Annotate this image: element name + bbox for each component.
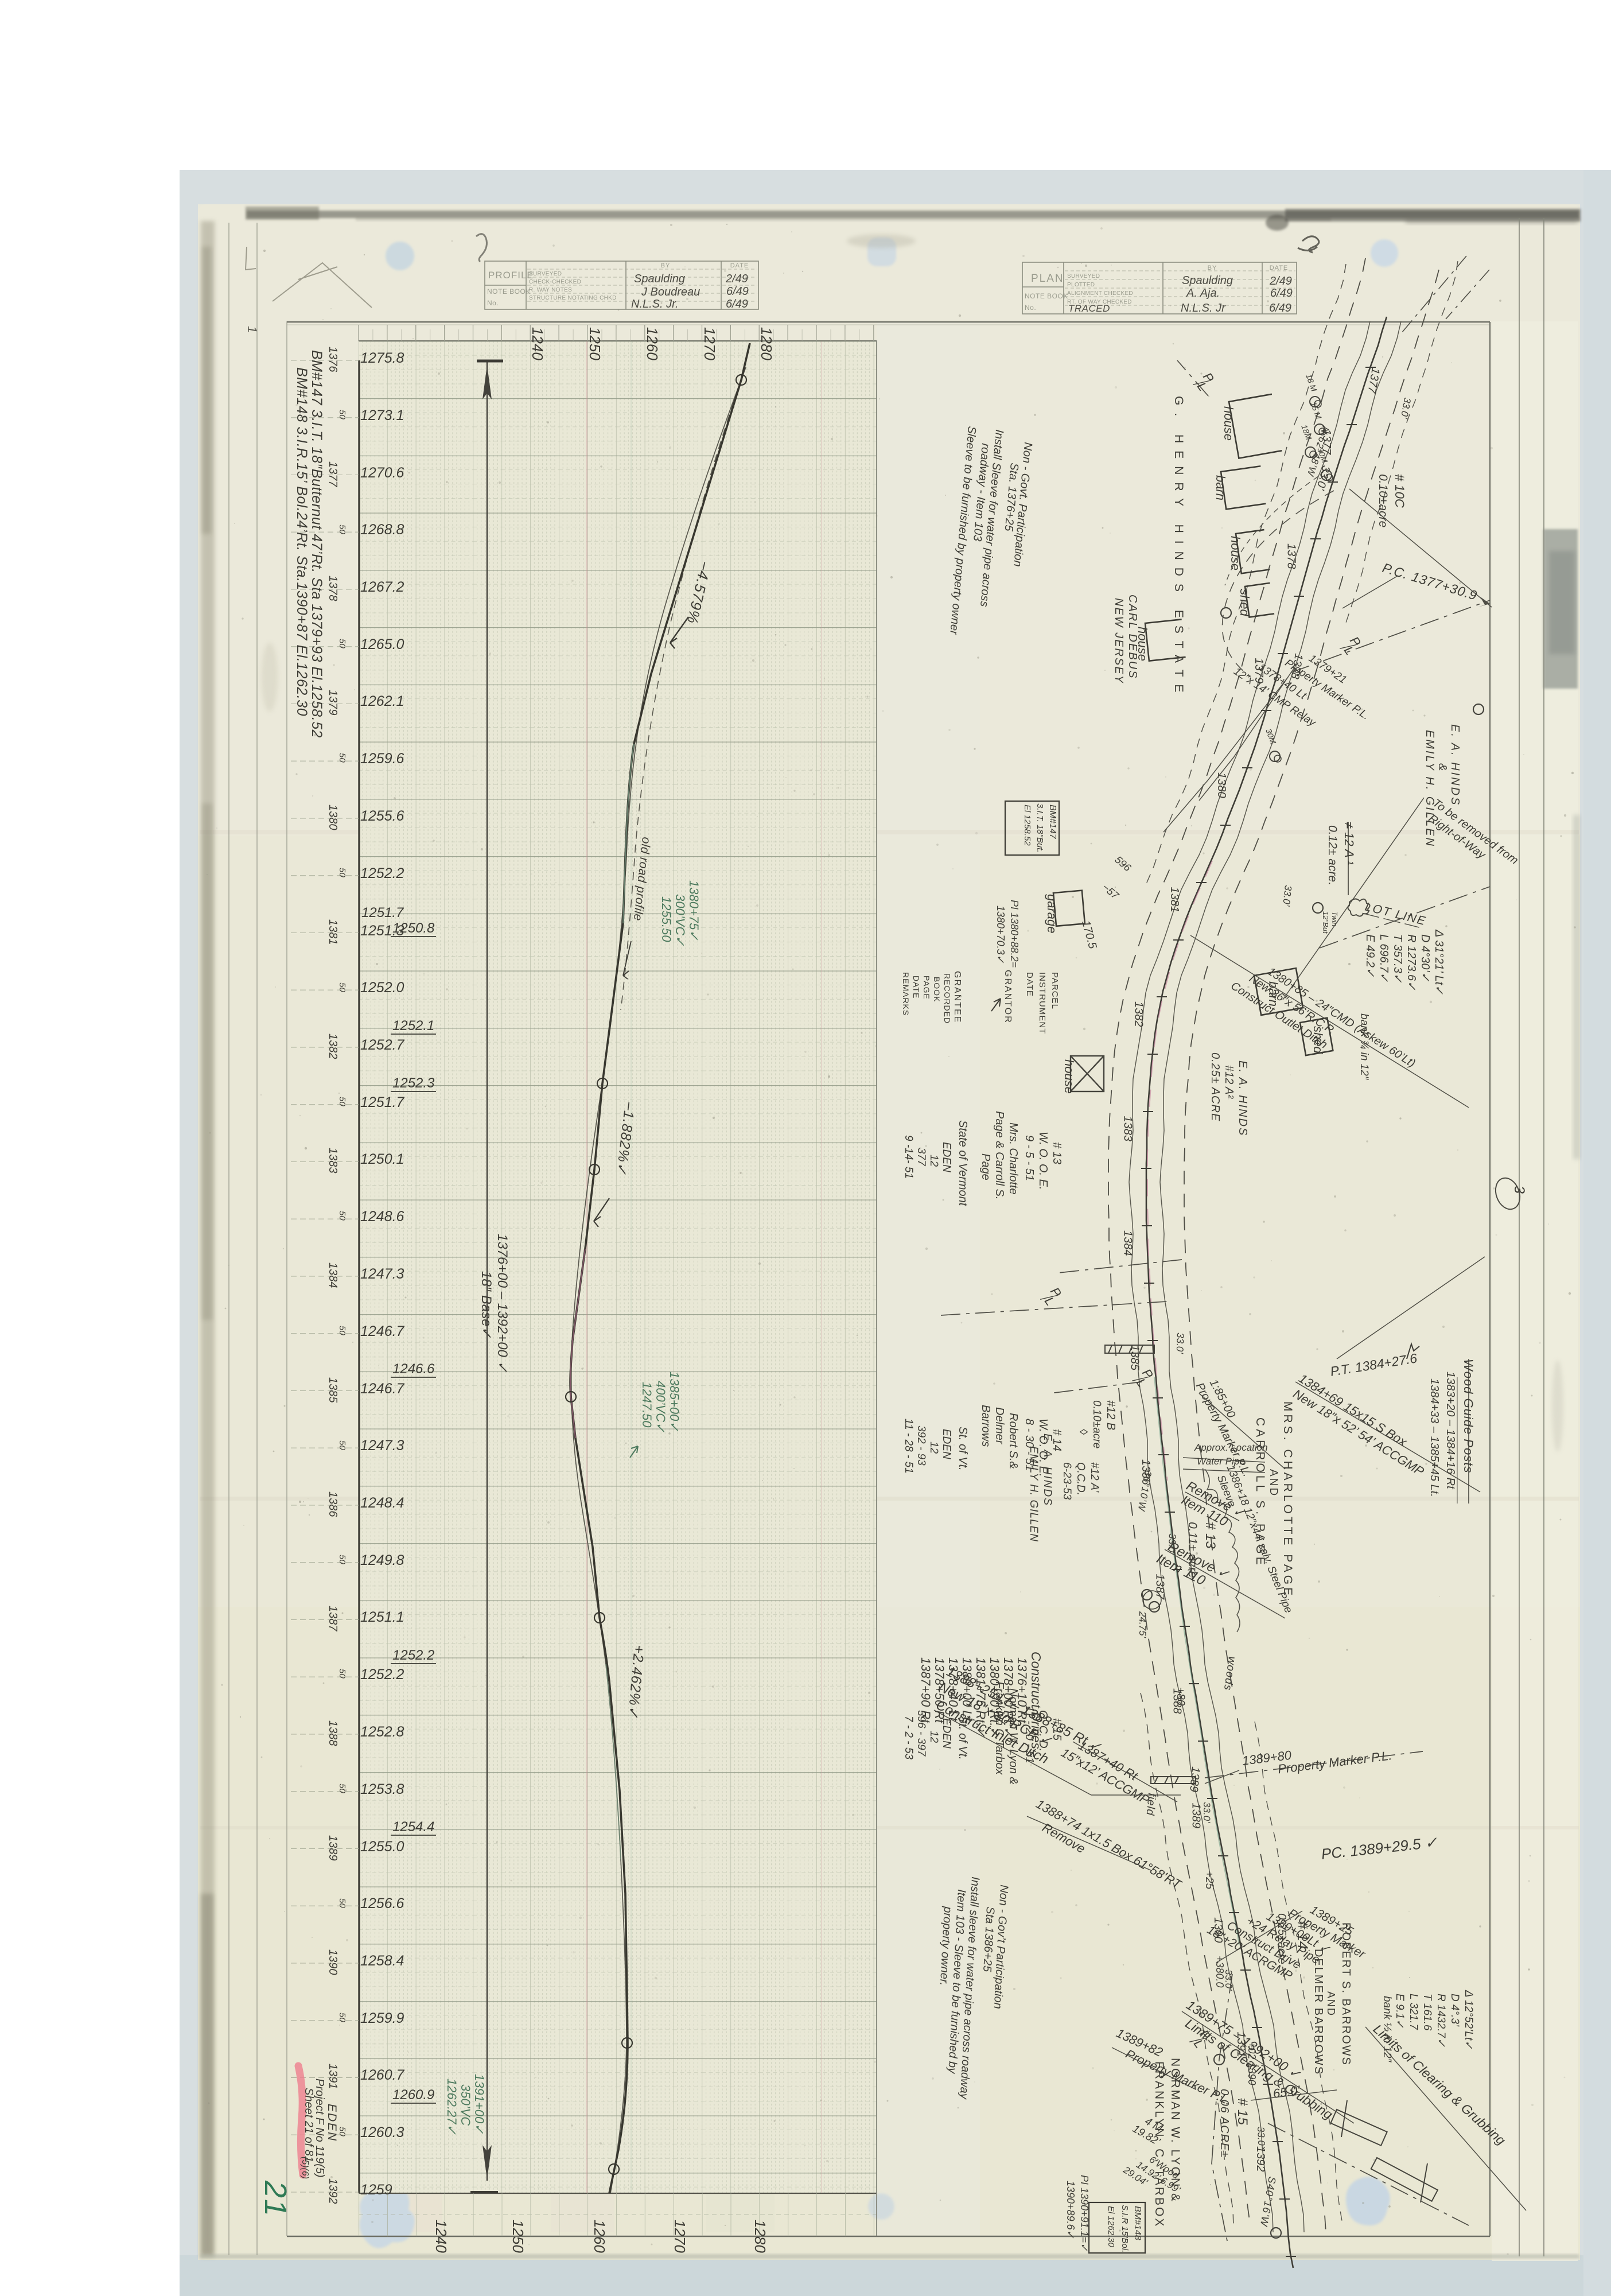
svg-text:Approx. Location: Approx. Location	[1194, 1442, 1268, 1453]
svg-text:1381: 1381	[1168, 887, 1181, 913]
svg-text:1378: 1378	[1285, 543, 1297, 569]
svg-text:1260: 1260	[591, 2220, 608, 2253]
svg-text:DATE: DATE	[1270, 265, 1289, 271]
svg-text:33.0’: 33.0’	[1255, 2126, 1267, 2148]
svg-text:ALIGNMENT CHECKED: ALIGNMENT CHECKED	[1067, 290, 1133, 297]
svg-text:Δ 12°52’Lt✓: Δ 12°52’Lt✓	[1462, 1990, 1474, 2049]
svg-text:#12 A’: #12 A’	[1088, 1462, 1100, 1493]
svg-text:Mrs. Charlotte: Mrs. Charlotte	[1007, 1122, 1019, 1195]
svg-text:INSTRUMENT: INSTRUMENT	[1037, 972, 1047, 1034]
svg-text:1250: 1250	[509, 2220, 527, 2253]
svg-text:Robert S.&: Robert S.&	[1007, 1413, 1019, 1469]
svg-text:1240: 1240	[433, 2220, 450, 2253]
svg-text:1253.8: 1253.8	[360, 1781, 404, 1797]
svg-text:PLAN: PLAN	[1031, 273, 1064, 285]
svg-text:9 -14- 51: 9 -14- 51	[902, 1135, 915, 1179]
svg-text:+380.0: +380.0	[1214, 1956, 1225, 1988]
svg-text:396 - 397: 396 - 397	[915, 1710, 927, 1757]
svg-text:1260.9: 1260.9	[392, 2087, 434, 2103]
svg-text:SURVEYED: SURVEYED	[1067, 273, 1100, 279]
svg-text:1252.2: 1252.2	[392, 1648, 434, 1663]
svg-text:◊: ◊	[1077, 1429, 1089, 1435]
svg-text:50: 50	[337, 525, 347, 534]
svg-text:PLOTTED: PLOTTED	[1067, 282, 1095, 288]
svg-text:S.I.R 15’Bol.: S.I.R 15’Bol.	[1120, 2205, 1130, 2252]
svg-text:TRACED: TRACED	[1068, 303, 1110, 314]
svg-text:1248.4: 1248.4	[360, 1495, 404, 1511]
svg-text:RECORDED: RECORDED	[943, 973, 952, 1024]
svg-text:1252.0: 1252.0	[360, 980, 404, 996]
svg-text:6/49: 6/49	[726, 298, 748, 310]
svg-text:1384: 1384	[326, 1262, 339, 1288]
svg-text:1280: 1280	[752, 2220, 769, 2253]
svg-text:377: 377	[915, 1148, 927, 1167]
svg-text:1247.3: 1247.3	[360, 1266, 404, 1282]
svg-text:# 13: # 13	[1203, 1522, 1218, 1549]
svg-text:Q.C.D.: Q.C.D.	[1075, 1462, 1087, 1495]
svg-text:R. WAY NOTES: R. WAY NOTES	[529, 287, 572, 293]
svg-text:L 321.7: L 321.7	[1407, 1994, 1419, 2030]
svg-text:# 10C: # 10C	[1392, 474, 1407, 508]
svg-text:11 - 28 - 51: 11 - 28 - 51	[902, 1419, 915, 1474]
svg-text:1246.6: 1246.6	[392, 1361, 435, 1377]
svg-text:50: 50	[337, 1669, 347, 1679]
svg-text:1262.1: 1262.1	[360, 693, 404, 709]
svg-text:DELMER BARROWS: DELMER BARROWS	[1312, 1949, 1325, 2075]
svg-text:St. of Vt.: St. of Vt.	[956, 1716, 969, 1760]
svg-text:1255.0: 1255.0	[360, 1839, 404, 1855]
svg-text:T 357.3✓: T 357.3✓	[1391, 934, 1404, 983]
svg-text:1376+00 – 1392+00 ✓: 1376+00 – 1392+00 ✓	[495, 1234, 510, 1373]
svg-text:Δ 31°21’ Lt✓: Δ 31°21’ Lt✓	[1433, 929, 1445, 994]
svg-text:1385: 1385	[326, 1377, 339, 1403]
svg-text:SURVEYED: SURVEYED	[529, 271, 562, 277]
svg-text:1254.4: 1254.4	[392, 1819, 434, 1835]
svg-text:R 1432.7✓: R 1432.7✓	[1435, 1994, 1447, 2047]
svg-text:BM#147: BM#147	[1048, 805, 1057, 840]
svg-text:Franklyn C.Tarbox: Franklyn C.Tarbox	[993, 1681, 1006, 1776]
svg-text:33.0’: 33.0’	[1281, 885, 1294, 907]
svg-text:1386: 1386	[326, 1491, 339, 1517]
svg-text:1376: 1376	[326, 347, 339, 372]
svg-text:1259.6: 1259.6	[360, 751, 404, 767]
svg-text:1377: 1377	[326, 461, 339, 487]
svg-text:1255.6: 1255.6	[360, 808, 404, 824]
svg-text:1256.6: 1256.6	[360, 1895, 404, 1912]
svg-text:1275.8: 1275.8	[360, 350, 404, 366]
svg-text:EMILY H. GILLEN: EMILY H. GILLEN	[1423, 730, 1436, 848]
svg-text:1388: 1388	[326, 1720, 339, 1746]
svg-text:G. HENRY HINDS ESTATE: G. HENRY HINDS ESTATE	[1172, 396, 1185, 700]
svg-text:GRANTOR: GRANTOR	[1003, 970, 1013, 1024]
svg-text:1380+70.3✓: 1380+70.3✓	[995, 906, 1006, 964]
svg-text:&: &	[1436, 763, 1449, 771]
svg-text:1390: 1390	[326, 1949, 339, 1975]
svg-text:1252.8: 1252.8	[360, 1724, 404, 1740]
svg-text:1270: 1270	[671, 2220, 688, 2253]
svg-text:1259: 1259	[360, 2182, 392, 2198]
svg-text:1251.7: 1251.7	[360, 1094, 405, 1110]
svg-text:T 161.6: T 161.6	[1421, 1994, 1433, 2031]
svg-text:St. of Vt.: St. of Vt.	[956, 1427, 969, 1471]
svg-text:1391+00✓: 1391+00✓	[472, 2074, 487, 2134]
svg-text:house: house	[1228, 536, 1243, 570]
svg-text:1390+89.6✓: 1390+89.6✓	[1065, 2181, 1076, 2239]
svg-text:1391: 1391	[326, 2064, 339, 2089]
svg-text:N.L.S. Jr: N.L.S. Jr	[1181, 302, 1226, 314]
svg-text:1247.50: 1247.50	[640, 1382, 654, 1428]
svg-text:1249.8: 1249.8	[360, 1552, 404, 1568]
svg-text:1382: 1382	[326, 1034, 339, 1059]
svg-text:DATE: DATE	[1025, 972, 1034, 997]
svg-text:1240: 1240	[529, 327, 546, 360]
svg-text:1280: 1280	[758, 327, 775, 360]
svg-text:1267.2: 1267.2	[360, 579, 404, 595]
svg-text:PAGE: PAGE	[922, 976, 931, 1000]
svg-text:1380+75✓: 1380+75✓	[687, 880, 701, 941]
svg-text:garage: garage	[1045, 894, 1059, 934]
svg-text:1383: 1383	[1121, 1116, 1134, 1142]
svg-text:1258.4: 1258.4	[360, 1953, 404, 1969]
svg-text:24.75’: 24.75’	[1137, 1611, 1148, 1638]
svg-text:1247.3: 1247.3	[360, 1438, 404, 1454]
svg-text:50: 50	[337, 1326, 347, 1335]
svg-text:1389: 1389	[1187, 1766, 1202, 1793]
svg-text:El 1262.30: El 1262.30	[1106, 2206, 1116, 2247]
svg-text:Sheet 21 of 81: Sheet 21 of 81	[302, 2088, 315, 2162]
svg-text:#12 B: #12 B	[1104, 1400, 1117, 1430]
svg-text:L 696.7✓: L 696.7✓	[1377, 934, 1390, 982]
svg-text:shed: shed	[1238, 589, 1252, 616]
svg-text:1392: 1392	[1254, 2146, 1267, 2172]
svg-text:9 - 5 - 51: 9 - 5 - 51	[1023, 1135, 1036, 1181]
svg-text:REMARKS: REMARKS	[901, 972, 910, 1016]
svg-text:1378: 1378	[326, 576, 339, 601]
svg-text:1384: 1384	[1122, 1230, 1134, 1256]
svg-text:# 15: # 15	[1235, 2098, 1250, 2125]
svg-text:1260.7: 1260.7	[360, 2067, 405, 2083]
svg-text:1252.3: 1252.3	[392, 1075, 435, 1091]
svg-text:+25: +25	[1203, 1871, 1215, 1890]
svg-text:R 1273.6✓: R 1273.6✓	[1405, 934, 1418, 990]
svg-text:1252.2: 1252.2	[360, 865, 404, 881]
svg-text:1383: 1383	[326, 1148, 339, 1174]
svg-text:1270.6: 1270.6	[360, 465, 404, 481]
svg-text:50: 50	[337, 1555, 347, 1564]
svg-text:1255.50: 1255.50	[659, 896, 674, 942]
svg-text:6/49: 6/49	[1270, 287, 1293, 300]
svg-text:8 - 30 - 51: 8 - 30 - 51	[1023, 1419, 1036, 1471]
svg-text:N.L.S. Jr.: N.L.S. Jr.	[631, 298, 679, 310]
svg-text:1250: 1250	[586, 327, 604, 360]
svg-text:0.10±acre: 0.10±acre	[1091, 1400, 1103, 1448]
svg-text:1251.1: 1251.1	[360, 1609, 404, 1625]
svg-text:1268.8: 1268.8	[360, 522, 404, 538]
svg-text:NOTE BOOK: NOTE BOOK	[1025, 292, 1068, 300]
svg-text:6/49: 6/49	[1269, 302, 1291, 314]
svg-text:State of Vermont: State of Vermont	[956, 1120, 969, 1207]
svg-text:1265.0: 1265.0	[360, 636, 404, 652]
svg-text:BM#147 3.I.T. 18″Butternut 47’: BM#147 3.I.T. 18″Butternut 47’Rt. Sta 13…	[309, 350, 325, 738]
svg-text:50: 50	[337, 410, 347, 419]
svg-text:1252.2: 1252.2	[360, 1666, 404, 1683]
svg-text:33.0’: 33.0’	[1174, 1332, 1186, 1354]
svg-text:1382: 1382	[1133, 1001, 1145, 1027]
svg-text:PARCEL: PARCEL	[1050, 972, 1060, 1009]
svg-text:Q. C. D.: Q. C. D.	[1037, 1710, 1049, 1751]
svg-text:1389+00 Lt.: 1389+00 Lt.	[960, 1657, 974, 1724]
svg-text:350’VC: 350’VC	[458, 2084, 473, 2126]
svg-text:El 1258.52: El 1258.52	[1022, 805, 1032, 846]
svg-text:AND: AND	[1325, 1991, 1337, 2017]
svg-text:12″But: 12″But	[1321, 911, 1330, 934]
svg-text:50: 50	[337, 753, 347, 763]
svg-text:1260: 1260	[644, 327, 661, 360]
svg-text:E. A. HINDS: E. A. HINDS	[1449, 724, 1461, 806]
svg-text:Page: Page	[979, 1153, 992, 1180]
svg-text:1378+50 Rt: 1378+50 Rt	[932, 1657, 947, 1723]
svg-text:No.: No.	[487, 299, 499, 307]
svg-text:7 - 2 - 53: 7 - 2 - 53	[902, 1716, 915, 1759]
svg-text:Spaulding: Spaulding	[1182, 274, 1233, 287]
svg-text:12: 12	[928, 1731, 940, 1743]
svg-text:50: 50	[337, 1440, 347, 1450]
svg-text:BM#148 3.I.R.15’ Bol.24’Rt. St: BM#148 3.I.R.15’ Bol.24’Rt. Sta.1390+87 …	[294, 367, 310, 716]
svg-text:2/49: 2/49	[725, 273, 748, 285]
svg-text:12: 12	[928, 1155, 940, 1167]
svg-text:house: house	[1221, 406, 1236, 441]
svg-text:18″ Base✓: 18″ Base✓	[478, 1271, 494, 1338]
svg-text:Twin: Twin	[1330, 911, 1339, 926]
svg-text:BM#148: BM#148	[1133, 2206, 1142, 2240]
svg-text:6/49: 6/49	[726, 285, 749, 298]
svg-text:1379: 1379	[326, 690, 339, 716]
svg-text:1270: 1270	[701, 327, 718, 360]
svg-text:# 13: # 13	[1050, 1142, 1063, 1164]
svg-text:1252.7: 1252.7	[360, 1037, 405, 1053]
svg-text:6-23-53: 6-23-53	[1061, 1462, 1073, 1500]
svg-text:3.I.T. 18″But.: 3.I.T. 18″But.	[1035, 803, 1045, 853]
svg-text:EDEN: EDEN	[325, 2104, 338, 2142]
svg-text:1381: 1381	[326, 919, 339, 945]
svg-text:1252.1: 1252.1	[392, 1018, 434, 1034]
svg-text:1250.8: 1250.8	[392, 920, 435, 936]
svg-text:barn: barn	[1213, 475, 1228, 500]
svg-text:PROFILE: PROFILE	[488, 270, 534, 281]
svg-text:Water Pipe: Water Pipe	[1197, 1456, 1245, 1467]
svg-text:NOTE BOOK: NOTE BOOK	[487, 288, 531, 296]
svg-text:+80: +80	[1174, 1687, 1186, 1706]
svg-text:1389: 1389	[326, 1835, 339, 1861]
svg-text:# 14: # 14	[1050, 1429, 1063, 1451]
svg-text:≠ 12 A ¹: ≠ 12 A ¹	[1342, 822, 1356, 865]
svg-text:50: 50	[337, 868, 347, 877]
svg-text:Barrows: Barrows	[979, 1405, 992, 1447]
svg-text:EDEN: EDEN	[940, 1429, 952, 1459]
svg-text:50: 50	[337, 1898, 347, 1908]
svg-text:1250.1: 1250.1	[360, 1151, 404, 1167]
svg-text:W. O. O. E.: W. O. O. E.	[1037, 1419, 1049, 1477]
svg-text:1248.6: 1248.6	[360, 1209, 404, 1225]
svg-text:DATE: DATE	[730, 262, 749, 269]
svg-text:50: 50	[337, 982, 347, 992]
svg-text:No.: No.	[1025, 304, 1036, 312]
svg-text:AND: AND	[1267, 1469, 1279, 1497]
svg-text:50: 50	[337, 639, 347, 648]
svg-text:+02 1390: +02 1390	[1246, 2042, 1258, 2085]
svg-text:1381+75 Rt.✓: 1381+75 Rt.✓	[974, 1657, 988, 1737]
svg-text:NEW JERSEY: NEW JERSEY	[1112, 598, 1125, 684]
svg-text:1380: 1380	[326, 805, 339, 830]
svg-text:Delmer: Delmer	[993, 1407, 1006, 1445]
svg-text:300’VC✓: 300’VC✓	[673, 894, 687, 946]
svg-text:BY: BY	[661, 262, 671, 269]
svg-text:E. A. HINDS: E. A. HINDS	[1236, 1060, 1249, 1136]
svg-text:DATE: DATE	[912, 976, 921, 999]
svg-text:CARL DEBUS: CARL DEBUS	[1126, 595, 1139, 679]
svg-text:21: 21	[258, 2180, 293, 2217]
svg-text:Page & Carroll S.: Page & Carroll S.	[993, 1111, 1006, 1200]
svg-text:33.0’: 33.0’	[1166, 1533, 1178, 1555]
svg-text:50: 50	[337, 1211, 347, 1221]
svg-text:W. O. O. E.: W. O. O. E.	[1037, 1132, 1049, 1190]
svg-text:0.12± acre.: 0.12± acre.	[1326, 825, 1339, 885]
svg-text:1246.7: 1246.7	[360, 1381, 405, 1397]
svg-text:J Boudreau: J Boudreau	[641, 286, 700, 298]
svg-text:1262.27✓: 1262.27✓	[445, 2079, 459, 2135]
svg-text:CHECK-CHECKED: CHECK-CHECKED	[529, 279, 581, 285]
svg-text:#12 A²: #12 A²	[1223, 1065, 1235, 1100]
svg-text:1260.3: 1260.3	[360, 2124, 404, 2140]
svg-text:50: 50	[337, 1784, 347, 1793]
svg-text:1: 1	[245, 326, 259, 333]
svg-text:11 - 20 - 51: 11 - 20 - 51	[1023, 1706, 1036, 1763]
svg-text:392 - 93: 392 - 93	[915, 1425, 927, 1466]
svg-text:2/49: 2/49	[1269, 275, 1292, 288]
svg-text:1389: 1389	[1190, 1803, 1203, 1829]
svg-text:E 49.2✓: E 49.2✓	[1364, 934, 1376, 977]
svg-text:12: 12	[928, 1442, 940, 1454]
svg-text:0.10±acre: 0.10±acre	[1376, 474, 1390, 527]
svg-text:1378+40 Lt.: 1378+40 Lt.	[946, 1657, 960, 1724]
svg-text:MRS. CHARLOTTE PAGE: MRS. CHARLOTTE PAGE	[1281, 1401, 1294, 1598]
svg-text:A. Aja.: A. Aja.	[1186, 287, 1220, 300]
svg-text:Norman W. Lyon &: Norman W. Lyon &	[1007, 1688, 1019, 1785]
svg-text:1273.1: 1273.1	[360, 407, 404, 424]
svg-text:1380: 1380	[1215, 772, 1228, 798]
svg-text:1383+20 – 1384+16 Rt: 1383+20 – 1384+16 Rt	[1444, 1372, 1457, 1490]
svg-text:house: house	[1062, 1059, 1076, 1094]
svg-text:EDEN: EDEN	[940, 1718, 952, 1749]
svg-text:BY: BY	[1208, 265, 1217, 271]
svg-text:50: 50	[337, 1097, 347, 1106]
svg-text:50: 50	[337, 2013, 347, 2022]
svg-text:Spaulding: Spaulding	[634, 273, 685, 285]
svg-text:1392: 1392	[326, 2178, 339, 2204]
svg-text:# 15: # 15	[1050, 1718, 1063, 1741]
svg-text:33.0’: 33.0’	[1201, 1802, 1212, 1823]
svg-text:1385+00✓: 1385+00✓	[667, 1372, 682, 1432]
svg-text:E 9.1✓: E 9.1✓	[1394, 1994, 1406, 2028]
svg-text:3: 3	[1511, 1186, 1527, 1194]
svg-text:EDEN: EDEN	[940, 1142, 952, 1172]
svg-text:BOOK: BOOK	[932, 977, 941, 1002]
svg-text:0.25± ACRE: 0.25± ACRE	[1209, 1052, 1221, 1121]
svg-text:400’VC✓: 400’VC✓	[653, 1381, 668, 1433]
svg-text:D 4°30’✓: D 4°30’✓	[1419, 934, 1431, 982]
svg-text:1259.9: 1259.9	[360, 2010, 404, 2026]
svg-text:D 4°.3’: D 4°.3’	[1449, 1994, 1461, 2027]
svg-text:1387: 1387	[326, 1606, 339, 1631]
svg-text:1387: 1387	[1153, 1574, 1166, 1600]
svg-text:1384+33 – 1385+45 Lt.: 1384+33 – 1385+45 Lt.	[1428, 1378, 1441, 1497]
svg-text:STRUCTURE NOTATING CHKD: STRUCTURE NOTATING CHKD	[529, 295, 617, 301]
svg-text:(5)(6): (5)(6)	[300, 2157, 310, 2179]
svg-text:1385: 1385	[1128, 1345, 1141, 1371]
svg-text:1246.7: 1246.7	[360, 1323, 405, 1339]
svg-text:1251.7: 1251.7	[361, 905, 404, 920]
svg-text:PI 1380+88.2=: PI 1380+88.2=	[1009, 900, 1020, 968]
